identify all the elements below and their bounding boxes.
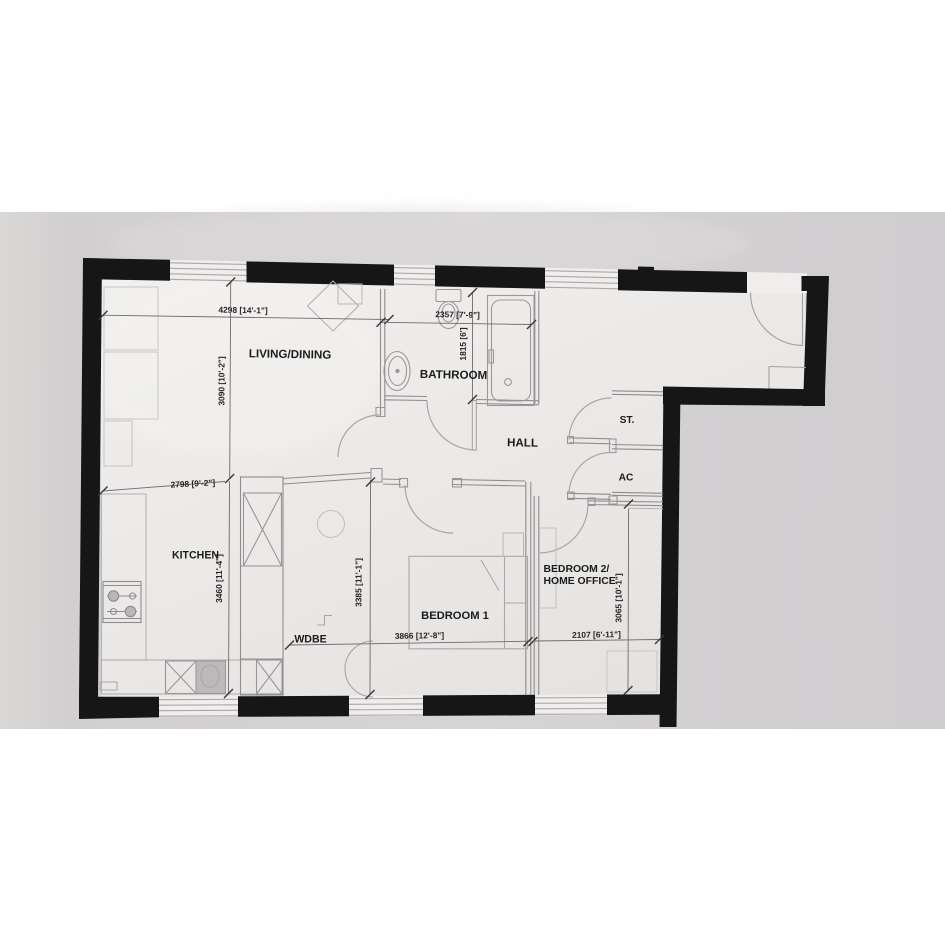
svg-text:4298 [14'-1"]: 4298 [14'-1"] [218,305,268,316]
svg-text:KITCHEN: KITCHEN [172,550,219,562]
svg-text:WDBE: WDBE [294,634,326,646]
svg-text:3866 [12'-8"]: 3866 [12'-8"] [395,630,445,641]
svg-text:HOME OFFICE: HOME OFFICE [544,576,616,587]
svg-text:1815 [6']: 1815 [6'] [458,327,468,360]
svg-text:BATHROOM: BATHROOM [420,368,488,382]
svg-text:AC: AC [619,473,634,484]
svg-text:2107 [6'-11"]: 2107 [6'-11"] [572,629,621,640]
svg-text:BEDROOM 1: BEDROOM 1 [421,610,489,622]
svg-text:3385 [11'-1"]: 3385 [11'-1"] [354,558,364,607]
svg-text:HALL: HALL [507,436,538,450]
svg-text:ST.: ST. [620,415,635,426]
svg-text:BEDROOM 2/: BEDROOM 2/ [544,564,610,575]
svg-text:LIVING/DINING: LIVING/DINING [249,347,332,361]
svg-text:2357 [7'-9"]: 2357 [7'-9"] [435,309,480,320]
svg-text:3090 [10'-2"]: 3090 [10'-2"] [217,356,227,405]
